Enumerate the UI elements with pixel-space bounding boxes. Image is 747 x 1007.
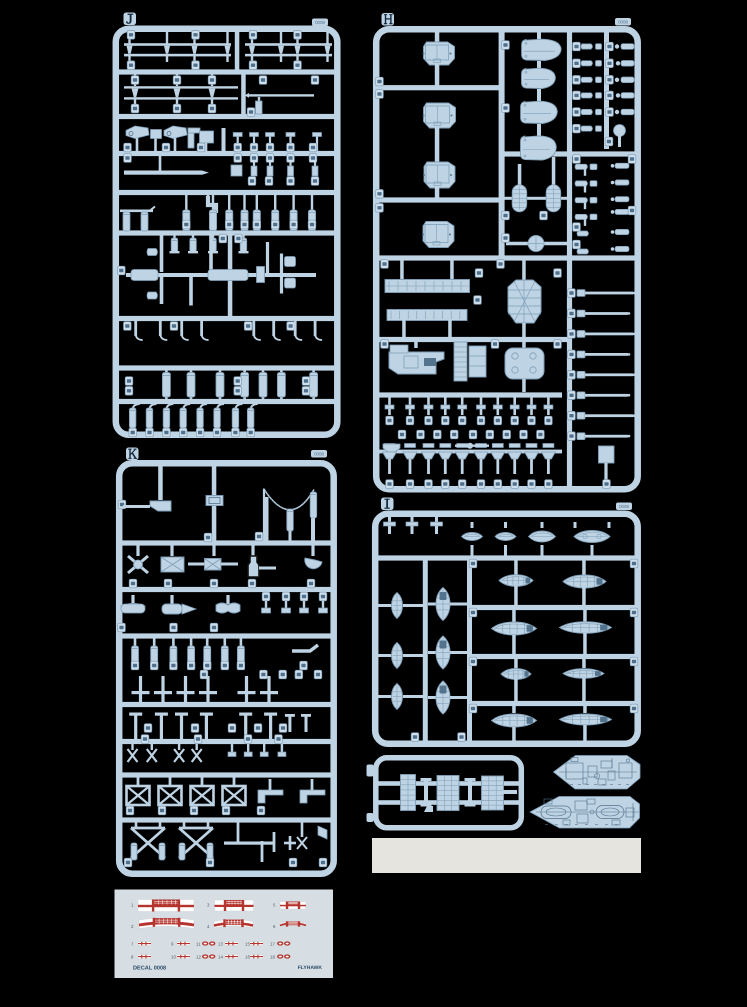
svg-text:0008: 0008 [618, 20, 628, 25]
svg-text:DECAL 0008: DECAL 0008 [133, 966, 166, 972]
svg-text:0008: 0008 [314, 452, 324, 457]
svg-text:15: 15 [245, 942, 250, 947]
svg-text:0008: 0008 [315, 20, 325, 25]
svg-text:16: 16 [245, 955, 250, 960]
svg-text:13: 13 [218, 942, 223, 947]
svg-text:10: 10 [171, 955, 176, 960]
svg-text:0008: 0008 [619, 504, 629, 509]
svg-text:FLYHAWK: FLYHAWK [298, 965, 323, 971]
svg-text:12: 12 [196, 955, 201, 960]
svg-text:18: 18 [270, 955, 275, 960]
svg-text:11: 11 [196, 942, 201, 947]
svg-text:17: 17 [270, 942, 275, 947]
svg-text:14: 14 [218, 955, 223, 960]
